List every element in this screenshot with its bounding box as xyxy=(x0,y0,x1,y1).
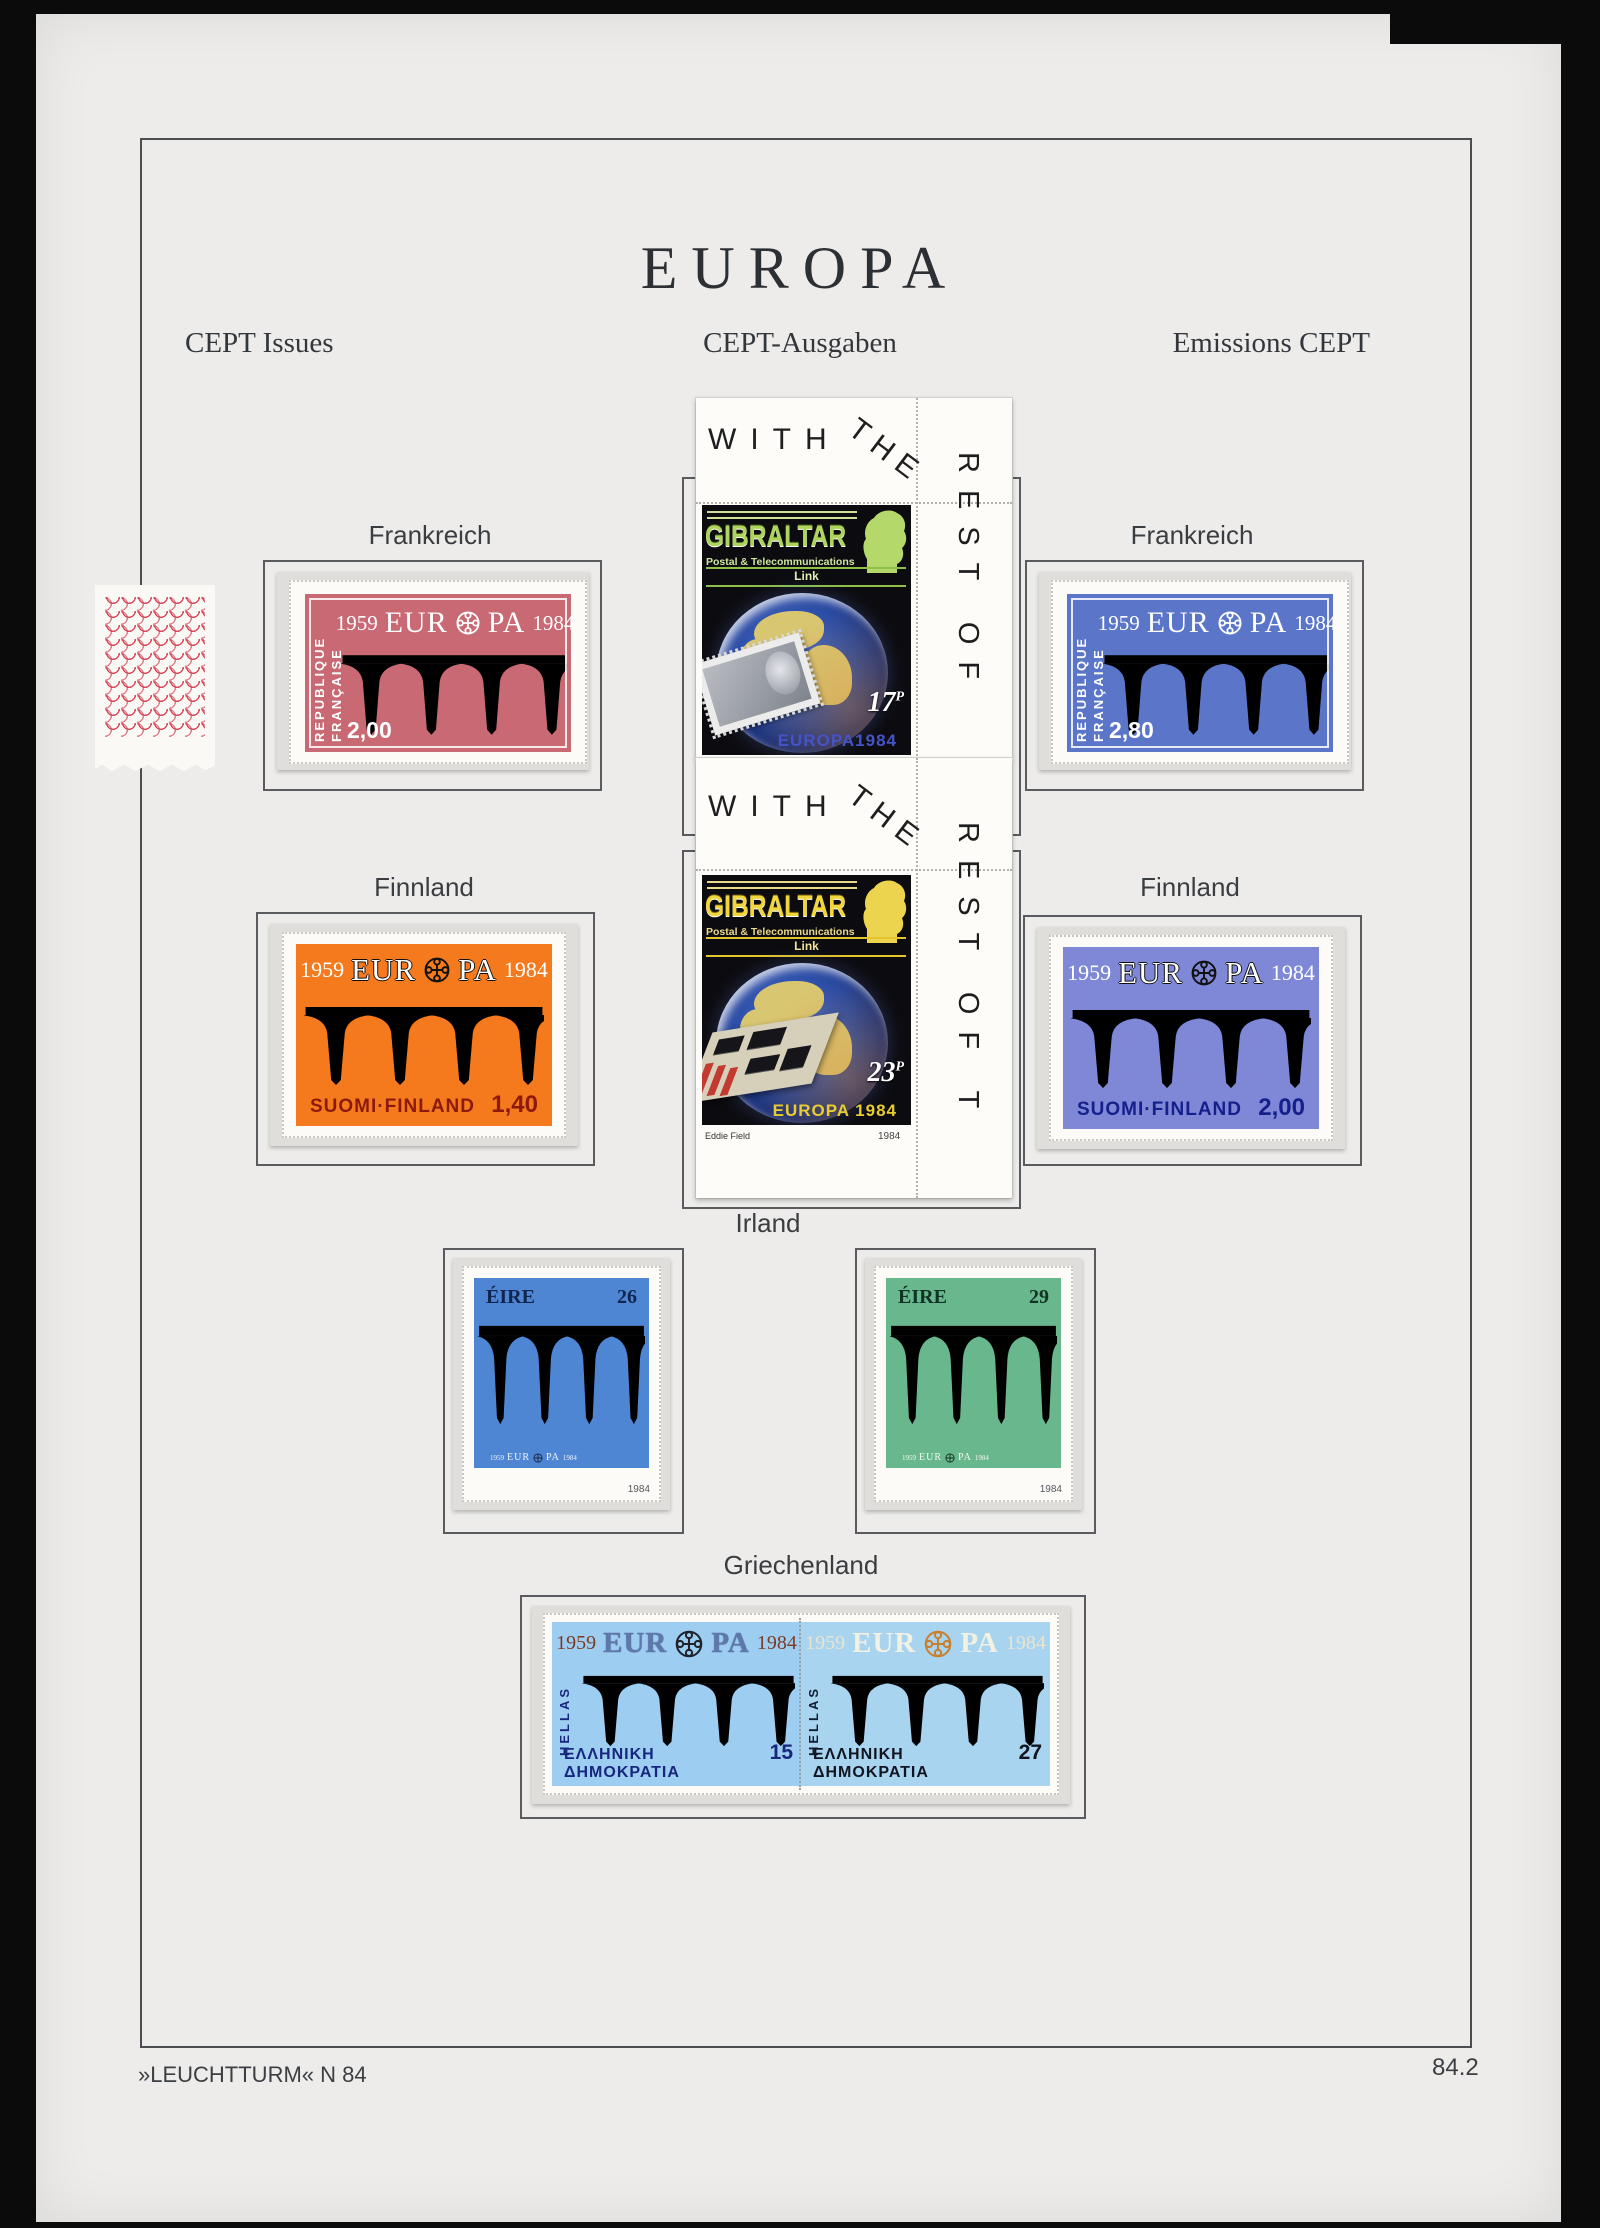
cept-emblem-icon xyxy=(455,610,481,636)
label-frankreich-right: Frankreich xyxy=(1131,520,1254,551)
cept-emblem-icon xyxy=(674,1629,704,1659)
subtitle-french: Emissions CEPT xyxy=(1040,327,1370,360)
gibraltar-name: GIBRALTAR xyxy=(705,520,846,554)
face-value: 17P xyxy=(867,687,904,719)
corner-year: 1984 xyxy=(628,1484,650,1495)
cept-emblem-icon xyxy=(1190,959,1218,987)
year-1984: 1984 xyxy=(532,611,571,636)
cept-emblem-icon xyxy=(923,1629,953,1659)
europa-headline: 1959 EUR PA 1984 xyxy=(1107,606,1327,640)
face-value: 2,00 xyxy=(1258,1094,1305,1122)
sheet-margin-text: WITH xyxy=(708,423,841,457)
link-label: Link xyxy=(702,569,911,583)
gibraltar-name: GIBRALTAR xyxy=(705,890,846,924)
album-page-scan: EUROPA CEPT Issues CEPT-Ausgaben Emissio… xyxy=(0,0,1600,2228)
scan-edge-top xyxy=(0,0,1600,14)
bridge-graphic xyxy=(304,996,544,1096)
europa-eur: EUR xyxy=(919,1452,942,1463)
face-value: 15 xyxy=(770,1741,793,1765)
year-1959: 1959 xyxy=(1067,960,1111,986)
chip xyxy=(747,1027,787,1050)
europa-headline: 1959 EUR PA 1984 xyxy=(1063,955,1319,991)
year-1984: 1984 xyxy=(975,1454,989,1462)
queen-silhouette-icon xyxy=(861,509,907,573)
cept-emblem-icon xyxy=(423,956,451,984)
year-1959: 1959 xyxy=(805,1632,845,1655)
stamp-greece-15: 1959 EUR PA 1984 xyxy=(552,1622,801,1786)
sheet-margin-text-vertical: REST OF T xyxy=(942,822,984,1184)
year-1984: 1984 xyxy=(504,957,548,983)
face-value: 1,40 xyxy=(491,1091,538,1119)
europa-1984-line: EUROPA1984 xyxy=(778,731,897,751)
album-brand-footer: »LEUCHTTURM« N 84 xyxy=(138,2062,367,2088)
europa-headline: 1959 EUR PA 1984 xyxy=(345,606,565,640)
europa-footline: 1959 EUR PA 1984 xyxy=(490,1452,577,1463)
stamp-gibraltar-23p: GIBRALTAR Postal & Telecommunications Li… xyxy=(702,875,911,1125)
cept-emblem-icon xyxy=(945,1453,955,1463)
selvage-scrap xyxy=(95,585,215,773)
stamp-france-red: REPUBLIQUE FRANÇAISE 1959 EUR PA 1984 xyxy=(305,594,571,752)
country-value-header: ÉIRE 29 xyxy=(898,1286,1049,1309)
rule xyxy=(706,585,906,587)
face-value: 27 xyxy=(1019,1741,1042,1765)
stamp-finland-orange: 1959 EUR PA 1984 xyxy=(296,944,552,1126)
france-country-line1: REPUBLIQUE xyxy=(1074,604,1089,742)
chip xyxy=(745,1054,780,1074)
bridge-graphic xyxy=(1071,999,1311,1099)
page-title: EUROPA xyxy=(0,234,1600,303)
europa-pa: PA xyxy=(546,1452,560,1463)
stamp-finland-blue: 1959 EUR PA 1984 xyxy=(1063,947,1319,1129)
bridge-graphic xyxy=(478,1312,645,1438)
year-1984: 1984 xyxy=(1006,1632,1046,1655)
value-unit: P xyxy=(895,1060,904,1075)
country-name: ΕΛΛΗΝΙΚΗ ΔΗΜΟΚΡΑΤΙΑ xyxy=(564,1746,770,1782)
cept-emblem-icon xyxy=(1217,610,1243,636)
rule xyxy=(707,511,857,513)
europa-eur: EUR xyxy=(603,1627,667,1660)
europa-eur: EUR xyxy=(1118,955,1183,991)
stamp-france-blue: REPUBLIQUE FRANÇAISE 1959 EUR PA 1984 xyxy=(1067,594,1333,752)
rule xyxy=(706,955,906,957)
europa-headline: 1959 EUR PA 1984 xyxy=(558,1627,795,1660)
europa-eur: EUR xyxy=(852,1627,916,1660)
europa-pa: PA xyxy=(960,1627,999,1660)
queen-silhouette-icon xyxy=(861,879,907,943)
page-number: 84.2 xyxy=(1432,2054,1479,2082)
country-name: SUOMI·FINLAND xyxy=(1077,1099,1242,1121)
europa-headline: 1959 EUR PA 1984 xyxy=(807,1627,1044,1660)
europa-eur: EUR xyxy=(507,1452,530,1463)
stamp-gibraltar-17p: GIBRALTAR Postal & Telecommunications Li… xyxy=(702,505,911,755)
scan-edge-bottom xyxy=(0,2222,1600,2228)
europa-pa: PA xyxy=(488,606,526,640)
europa-pa: PA xyxy=(1250,606,1288,640)
plate-year: 1984 xyxy=(878,1131,900,1142)
year-1959: 1959 xyxy=(490,1454,504,1462)
year-1984: 1984 xyxy=(563,1454,577,1462)
link-label: Link xyxy=(702,939,911,953)
year-1984: 1984 xyxy=(757,1632,797,1655)
perforation-line xyxy=(799,1618,801,1790)
year-1959: 1959 xyxy=(300,957,344,983)
value-unit: P xyxy=(895,690,904,705)
chip xyxy=(779,1045,811,1070)
year-1959: 1959 xyxy=(556,1632,596,1655)
country-name: SUOMI·FINLAND xyxy=(310,1096,475,1118)
year-1959: 1959 xyxy=(1098,611,1140,636)
corner-year: 1984 xyxy=(1040,1484,1062,1495)
europa-eur: EUR xyxy=(351,952,416,988)
face-value: 2,00 xyxy=(347,717,392,744)
europa-pa: PA xyxy=(711,1627,750,1660)
country-name: ÉIRE xyxy=(898,1286,947,1309)
europa-footline: 1959 EUR PA 1984 xyxy=(902,1452,989,1463)
cept-emblem-icon xyxy=(533,1453,543,1463)
face-value: 2,80 xyxy=(1109,717,1154,744)
europa-eur: EUR xyxy=(1147,606,1210,640)
country-value-line: SUOMI·FINLAND 2,00 xyxy=(1077,1094,1305,1122)
rule xyxy=(707,881,857,883)
gibraltar-corner-block-17p: WITH THE REST OF GIBRALTAR Postal & Tele… xyxy=(696,398,1012,760)
value-number: 17 xyxy=(867,687,895,718)
country-value-line: ΕΛΛΗΝΙΚΗ ΔΗΜΟΚΡΑΤΙΑ 15 xyxy=(564,1741,793,1782)
face-value: 26 xyxy=(617,1286,637,1309)
rule xyxy=(707,517,857,519)
europa-1984-line: EUROPA 1984 xyxy=(773,1101,897,1121)
chip xyxy=(713,1035,744,1054)
stamp-greece-27: 1959 EUR PA 1984 xyxy=(801,1622,1050,1786)
europa-pa: PA xyxy=(958,1452,972,1463)
stamp-ireland-green: ÉIRE 29 1959 EUR xyxy=(886,1278,1061,1468)
country-name: ΕΛΛΗΝΙΚΗ ΔΗΜΟΚΡΑΤΙΑ xyxy=(813,1746,1019,1782)
year-1959: 1959 xyxy=(336,611,378,636)
label-finnland-right: Finnland xyxy=(1140,872,1240,903)
value-number: 23 xyxy=(867,1057,895,1088)
country-value-line: SUOMI·FINLAND 1,40 xyxy=(310,1091,538,1119)
country-name: ÉIRE xyxy=(486,1286,535,1309)
europa-eur: EUR xyxy=(385,606,448,640)
sheet-margin-text: WITH xyxy=(708,790,841,824)
europa-headline: 1959 EUR PA 1984 xyxy=(296,952,552,988)
face-value: 29 xyxy=(1029,1286,1049,1309)
country-value-header: ÉIRE 26 xyxy=(486,1286,637,1309)
label-frankreich-left: Frankreich xyxy=(369,520,492,551)
scan-edge-top-right xyxy=(1390,0,1600,44)
rule xyxy=(707,887,857,889)
designer-credit: Eddie Field xyxy=(705,1131,750,1141)
france-country-line1: REPUBLIQUE xyxy=(312,604,327,742)
year-1984: 1984 xyxy=(1294,611,1333,636)
europa-pa: PA xyxy=(1225,955,1264,991)
sheet-margin-text-vertical: REST OF xyxy=(942,452,984,752)
stamp-ireland-blue: ÉIRE 26 1959 EUR xyxy=(474,1278,649,1468)
label-irland: Irland xyxy=(735,1208,800,1239)
bridge-graphic xyxy=(890,1312,1057,1438)
europa-pa: PA xyxy=(458,952,497,988)
year-1984: 1984 xyxy=(1271,960,1315,986)
label-finnland-left: Finnland xyxy=(374,872,474,903)
country-value-line: ΕΛΛΗΝΙΚΗ ΔΗΜΟΚΡΑΤΙΑ 27 xyxy=(813,1741,1042,1782)
gibraltar-corner-block-23p: WITH THE REST OF T GIBRALTAR Postal & Te… xyxy=(696,758,1012,1198)
label-griechenland: Griechenland xyxy=(724,1550,879,1581)
year-1959: 1959 xyxy=(902,1454,916,1462)
guilloche-pattern xyxy=(105,597,205,737)
face-value: 23P xyxy=(867,1057,904,1089)
